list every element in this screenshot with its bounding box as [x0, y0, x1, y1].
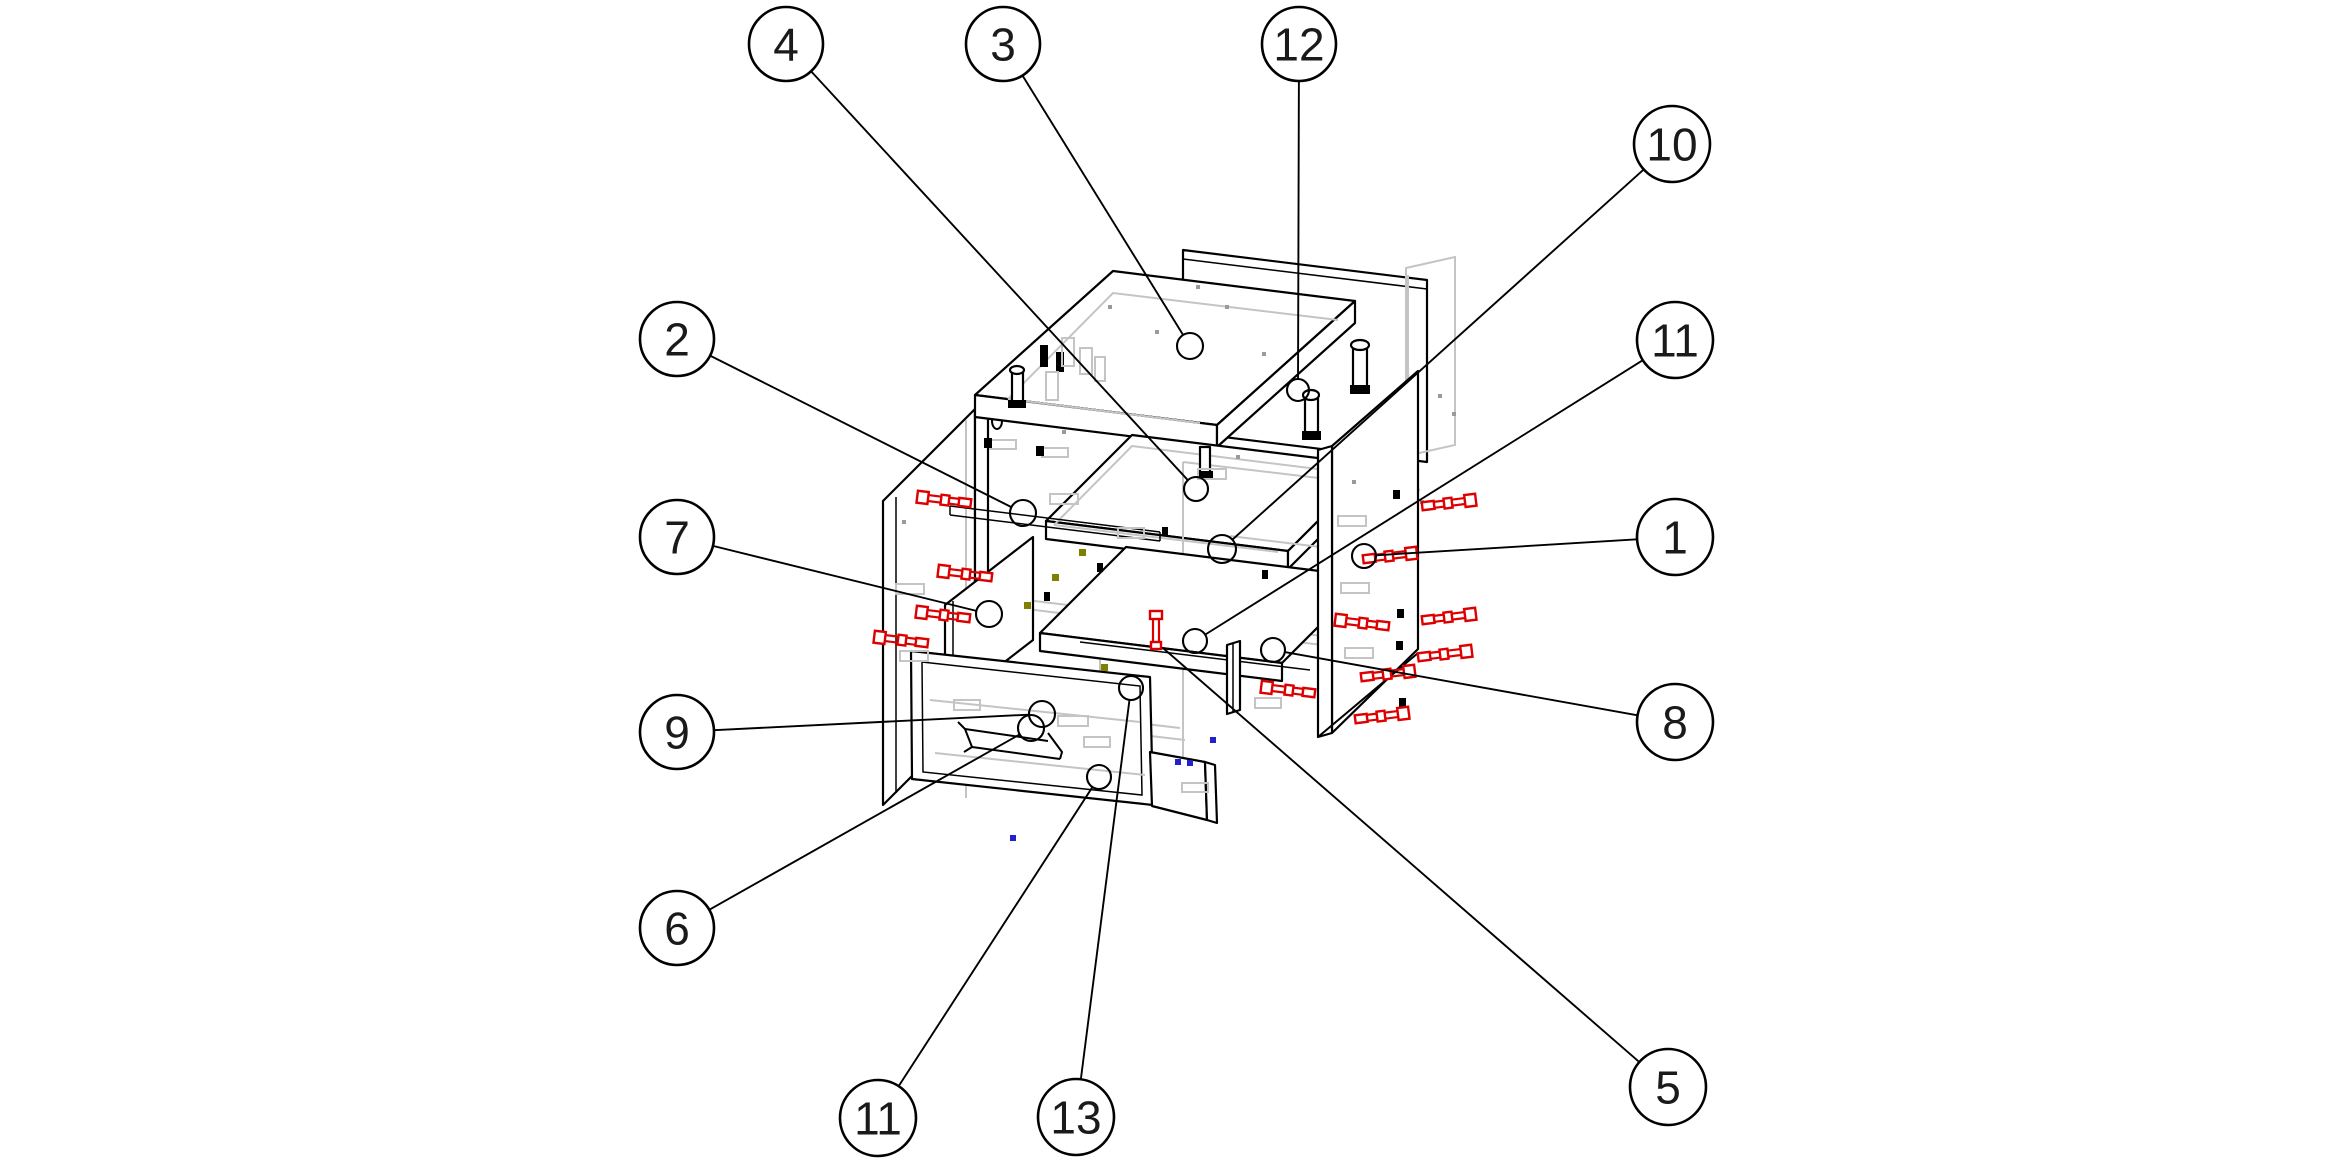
balloon-number: 13	[1050, 1092, 1101, 1144]
blue-marker-dot	[1187, 760, 1193, 766]
fastener-icon	[1260, 681, 1315, 699]
diagram-canvas: 4312101118527961113	[0, 0, 2350, 1164]
blue-marker-dot	[1175, 759, 1181, 765]
balloon-3: 3	[966, 7, 1040, 81]
balloon-number: 9	[664, 707, 690, 759]
olive-marker-dot	[1024, 602, 1031, 609]
balloon-8: 8	[1637, 684, 1713, 760]
olive-marker-dot	[1101, 664, 1108, 671]
drawer-front-small	[1150, 752, 1217, 823]
leader-line-6	[709, 734, 1019, 909]
blue-marker-dot	[1210, 737, 1216, 743]
balloon-number: 11	[1651, 315, 1699, 367]
balloon-number: 5	[1655, 1062, 1681, 1114]
leader-line-12	[1298, 81, 1299, 379]
exploded-assembly-diagram: 4312101118527961113	[0, 0, 2350, 1164]
balloon-number: 11	[854, 1093, 902, 1145]
leader-target-2	[1010, 500, 1036, 526]
blue-marker-dot	[1010, 835, 1016, 841]
balloon-number: 4	[773, 19, 799, 71]
balloon-6: 6	[640, 891, 714, 965]
balloon-1: 1	[1637, 499, 1713, 575]
center-divider	[1227, 641, 1240, 714]
olive-marker-dot	[1079, 549, 1086, 556]
balloon-number: 12	[1273, 19, 1324, 71]
balloon-number: 7	[664, 512, 690, 564]
balloon-7: 7	[640, 500, 714, 574]
balloon-11r: 11	[1637, 302, 1713, 378]
balloon-number: 6	[664, 903, 690, 955]
balloon-13: 13	[1038, 1079, 1114, 1155]
balloon-12: 12	[1262, 7, 1336, 81]
drawer-front-large	[911, 651, 1153, 805]
balloon-9: 9	[640, 695, 714, 769]
fastener-icon	[1421, 494, 1476, 512]
balloon-2: 2	[640, 302, 714, 376]
balloon-number: 2	[664, 314, 690, 366]
hinge	[1197, 447, 1213, 478]
fastener-icon	[1421, 608, 1476, 626]
hinge	[1350, 340, 1370, 394]
olive-marker-dot	[1052, 574, 1059, 581]
balloon-number: 3	[990, 19, 1016, 71]
fastener-icon	[1417, 645, 1472, 663]
balloon-number: 1	[1662, 512, 1688, 564]
balloon-11l: 11	[840, 1080, 916, 1156]
fastener-icon	[1354, 707, 1409, 725]
balloon-5: 5	[1630, 1049, 1706, 1125]
leader-line-11	[899, 787, 1093, 1086]
balloon-number: 8	[1662, 697, 1688, 749]
balloon-10: 10	[1634, 106, 1710, 182]
balloon-4: 4	[749, 7, 823, 81]
balloon-number: 10	[1646, 119, 1697, 171]
